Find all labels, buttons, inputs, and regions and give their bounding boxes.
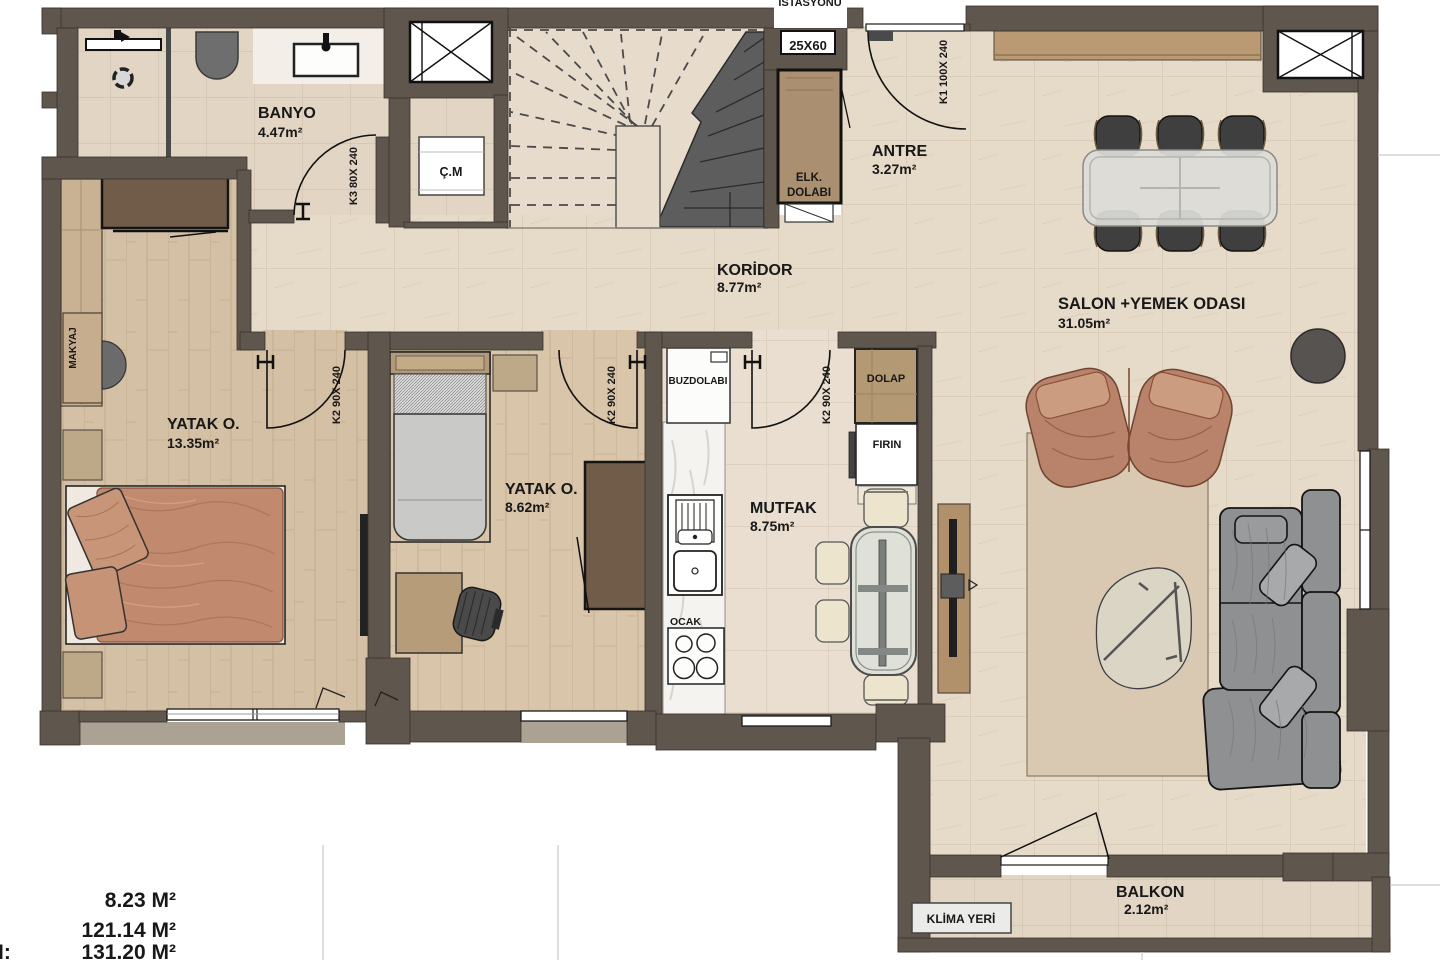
svg-text:İSTASYONU: İSTASYONU	[778, 0, 841, 9]
svg-text:I:: I:	[0, 941, 11, 960]
svg-text:YATAK O.: YATAK O.	[167, 416, 240, 433]
svg-text:BANYO: BANYO	[258, 105, 316, 122]
svg-text:YATAK O.: YATAK O.	[505, 481, 578, 498]
svg-text:K2 90X 240: K2 90X 240	[606, 366, 618, 424]
svg-text:ELK.: ELK.	[796, 172, 822, 184]
svg-text:8.75m²: 8.75m²	[750, 518, 795, 534]
svg-text:131.20 M²: 131.20 M²	[81, 941, 176, 960]
svg-text:13.35m²: 13.35m²	[167, 435, 219, 451]
svg-text:25X60: 25X60	[789, 38, 827, 53]
svg-text:MAKYAJ: MAKYAJ	[68, 327, 79, 368]
svg-text:FIRIN: FIRIN	[873, 439, 902, 451]
svg-text:121.14 M²: 121.14 M²	[81, 919, 176, 942]
svg-text:Ç.M: Ç.M	[440, 165, 463, 179]
svg-text:MUTFAK: MUTFAK	[750, 500, 817, 517]
svg-text:8.23 M²: 8.23 M²	[105, 889, 176, 912]
svg-text:KLİMA YERİ: KLİMA YERİ	[927, 911, 996, 926]
svg-text:K2 90X 240: K2 90X 240	[821, 366, 833, 424]
svg-text:8.77m²: 8.77m²	[717, 279, 762, 295]
svg-text:BUZDOLABI: BUZDOLABI	[669, 376, 728, 387]
svg-text:2.12m²: 2.12m²	[1124, 901, 1169, 917]
svg-text:8.62m²: 8.62m²	[505, 499, 550, 515]
svg-text:31.05m²: 31.05m²	[1058, 315, 1110, 331]
svg-text:K2 90X 240: K2 90X 240	[331, 366, 343, 424]
svg-text:BALKON: BALKON	[1116, 884, 1184, 901]
svg-text:KORİDOR: KORİDOR	[717, 261, 793, 279]
svg-text:SALON +YEMEK ODASI: SALON +YEMEK ODASI	[1058, 295, 1246, 313]
svg-text:K1 100X 240: K1 100X 240	[938, 40, 950, 104]
svg-text:K3 80X 240: K3 80X 240	[348, 147, 360, 205]
svg-text:3.27m²: 3.27m²	[872, 161, 917, 177]
svg-text:OCAK: OCAK	[670, 616, 701, 628]
svg-text:ANTRE: ANTRE	[872, 143, 927, 160]
svg-text:4.47m²: 4.47m²	[258, 124, 303, 140]
svg-text:DOLAP: DOLAP	[867, 373, 906, 385]
svg-text:DOLABI: DOLABI	[787, 187, 831, 199]
